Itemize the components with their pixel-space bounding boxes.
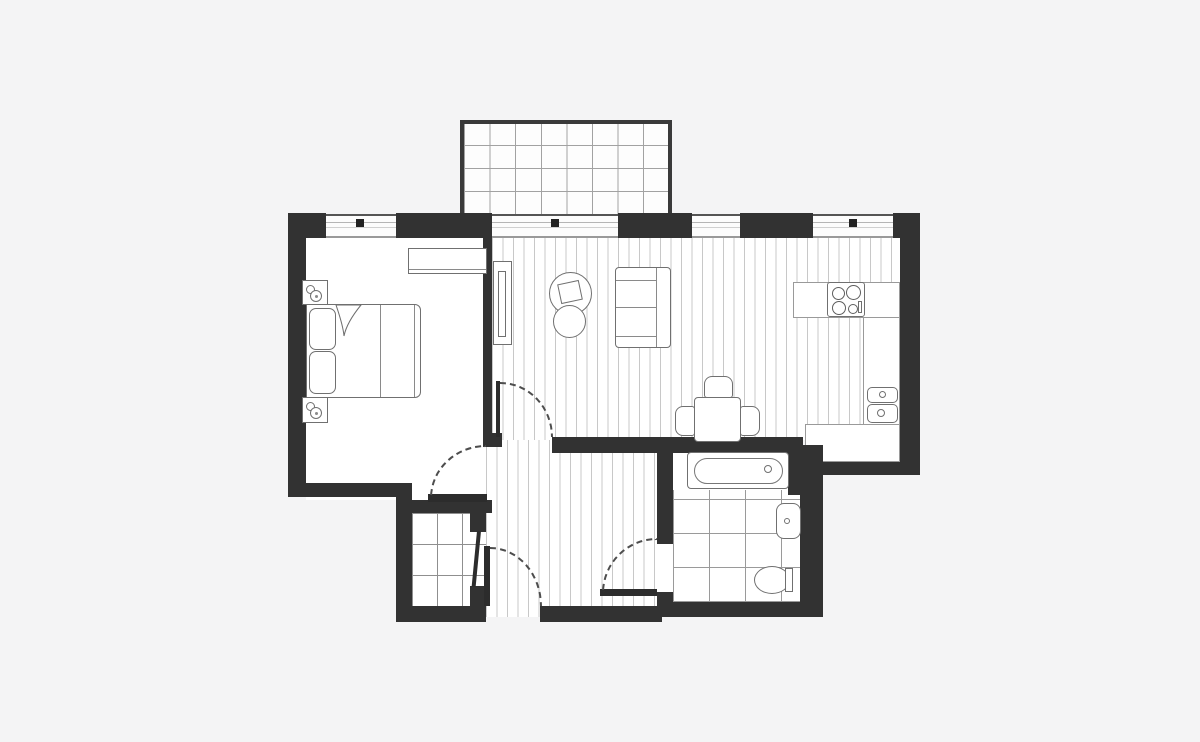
- sink-drain: [879, 391, 886, 398]
- lamp-dot: [315, 295, 318, 298]
- sofa-backrest-line: [656, 268, 657, 347]
- balcony-floor: [460, 120, 672, 215]
- duvet-fold: [335, 304, 362, 338]
- small-window: [692, 214, 740, 238]
- wardrobe-front-line: [409, 269, 486, 270]
- sink-drain: [877, 409, 885, 417]
- bathroom-doorway-floor: [657, 542, 673, 594]
- wall-step: [805, 462, 920, 475]
- dining-table: [694, 397, 741, 442]
- hob-burner: [832, 301, 846, 315]
- floor-plan: [0, 0, 1200, 742]
- dining-chair: [675, 406, 695, 436]
- hob-burner: [848, 304, 858, 314]
- wall: [396, 213, 492, 238]
- window-handle-icon: [551, 219, 559, 227]
- wall-left: [288, 213, 306, 497]
- wall-bathroom-bottom: [660, 602, 823, 617]
- dining-chair: [704, 376, 733, 398]
- hob-burner: [832, 287, 845, 300]
- hob-burner: [846, 285, 861, 300]
- wall-living-hall: [552, 437, 803, 453]
- basin-drain: [784, 518, 790, 524]
- wall-hall-bottom: [540, 606, 662, 622]
- sofa-armrest-line: [616, 280, 656, 281]
- wall-bedroom-bottom: [288, 483, 412, 497]
- bath-drain: [764, 465, 772, 473]
- wardrobe: [408, 248, 487, 274]
- pillow: [309, 351, 336, 394]
- wall-closet-jamb: [470, 512, 486, 532]
- toilet-tank: [785, 568, 793, 592]
- wall: [740, 213, 813, 238]
- wall-closet-left: [396, 483, 412, 622]
- coffee-table-small: [553, 305, 586, 338]
- wall: [618, 213, 692, 238]
- media-unit-slot: [498, 271, 506, 337]
- dining-chair: [740, 406, 760, 436]
- sofa-armrest-line: [616, 336, 656, 337]
- wall-bathroom-left: [657, 437, 673, 544]
- window-handle-icon: [356, 219, 364, 227]
- window-handle-icon: [849, 219, 857, 227]
- pillow: [309, 308, 336, 350]
- hob-control-bar: [858, 301, 862, 313]
- sofa-seat-line: [616, 307, 656, 308]
- entrance-threshold: [486, 607, 540, 617]
- wall-right: [900, 213, 920, 475]
- duvet-edge-line: [380, 305, 381, 397]
- bed-foot-line: [414, 305, 415, 397]
- wall-closet-bottom: [396, 606, 486, 622]
- lamp-dot: [315, 412, 318, 415]
